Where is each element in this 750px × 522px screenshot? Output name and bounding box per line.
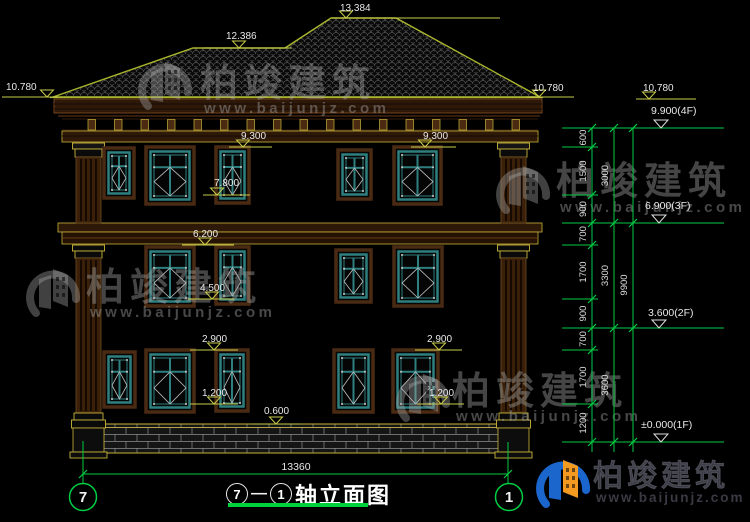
frame-dot — [185, 154, 187, 156]
frame-dot — [239, 357, 241, 359]
frame-dot — [429, 357, 431, 359]
frame-dot — [153, 166, 155, 168]
logo-window-dot — [426, 382, 429, 386]
dentil-block — [459, 120, 467, 131]
frame-dot — [362, 190, 364, 192]
dentil-block — [88, 120, 96, 131]
level-triangle — [654, 120, 668, 128]
chain-subtotal-value: 3300 — [600, 265, 611, 286]
frame-dot — [362, 257, 364, 259]
frame-dot — [364, 357, 366, 359]
frame-dot — [432, 195, 434, 197]
floor-level-marker: 9.900(4F) — [651, 105, 697, 128]
dentil-block — [353, 120, 361, 131]
logo-window-dot — [168, 78, 171, 82]
frame-dot — [401, 195, 403, 197]
window — [334, 350, 373, 412]
dentil-block — [512, 120, 520, 131]
frame-dot — [185, 166, 187, 168]
floor-level-marker: 6.900(3F) — [645, 200, 691, 223]
level-value: 1.200 — [429, 388, 454, 399]
frame-dot — [240, 166, 242, 168]
level-value: 10.780 — [643, 83, 674, 94]
dentil-block — [115, 120, 123, 131]
frame-dot — [239, 371, 241, 373]
level-marker: 2.900 — [415, 334, 462, 350]
pilaster-shaft — [76, 157, 101, 223]
logo-window-dot — [532, 190, 535, 194]
frame-dot — [343, 268, 345, 270]
pilaster-base — [72, 420, 106, 428]
level-marker: 10.780 — [636, 83, 696, 99]
frame-dot — [400, 357, 402, 359]
chain-segment-value: 700 — [578, 331, 589, 347]
frame-dot — [433, 254, 435, 256]
window — [394, 147, 441, 204]
watermark-logo-icon — [30, 269, 76, 313]
logo-building — [509, 172, 521, 206]
logo-building — [523, 166, 538, 204]
logo-window-dot — [532, 182, 535, 186]
frame-dot — [125, 155, 127, 157]
dentil-block — [194, 120, 202, 131]
dentil-block — [300, 120, 308, 131]
dentil-block — [327, 120, 335, 131]
logo-window-dot — [62, 285, 65, 289]
logo-window-dot — [572, 484, 575, 488]
logo-window-dot — [62, 293, 65, 297]
pilaster-pedestal — [73, 428, 104, 452]
watermark-brand: 柏竣建筑 — [200, 63, 376, 105]
logo-window-dot — [526, 182, 529, 186]
watermark-brand: 柏竣建筑 — [86, 267, 262, 309]
axis-bubble-label: 7 — [79, 489, 87, 506]
frame-dot — [185, 195, 187, 197]
axis-bubble-label: 1 — [505, 489, 513, 506]
title-underline — [228, 503, 368, 507]
logo-window-dot — [532, 174, 535, 178]
dentil-block — [406, 120, 414, 131]
level-value: 9.300 — [423, 131, 448, 142]
logo-window-dot — [56, 277, 59, 281]
frame-dot — [400, 371, 402, 373]
watermark-url: www.baijunjz.com — [455, 408, 641, 425]
dentil-block — [380, 120, 388, 131]
window — [104, 352, 135, 407]
level-triangle — [270, 417, 283, 424]
chain-segment-value: 900 — [578, 306, 589, 322]
floor-level-marker: ±0.000(1F) — [641, 419, 692, 442]
pilaster-capital — [75, 149, 102, 157]
frame-dot — [111, 189, 113, 191]
logo-window-dot — [526, 174, 529, 178]
frame-dot — [223, 254, 225, 256]
logo-building — [549, 466, 561, 500]
dentil-block — [221, 120, 229, 131]
frame-dot — [223, 357, 225, 359]
frame-dot — [343, 257, 345, 259]
axis-bubble: 7 — [70, 484, 97, 511]
pilaster-capital — [73, 245, 105, 251]
frame-dot — [126, 371, 128, 373]
chain-segment-value: 900 — [578, 201, 589, 217]
frame-dot — [111, 155, 113, 157]
logo-window-dot — [174, 78, 177, 82]
chain-segment-value: 1700 — [578, 261, 589, 282]
frame-dot — [401, 254, 403, 256]
logo-window-dot — [572, 476, 575, 480]
frame-dot — [433, 297, 435, 299]
logo-building — [53, 269, 68, 307]
window — [338, 150, 371, 199]
frame-dot — [362, 268, 364, 270]
floor-level-value: 6.900(3F) — [645, 200, 691, 212]
logo-building — [409, 380, 421, 414]
pilaster-capital — [498, 245, 530, 251]
level-marker: 0.600 — [252, 406, 300, 424]
frame-dot — [401, 267, 403, 269]
frame-dot — [433, 267, 435, 269]
frame-dot — [223, 166, 225, 168]
pilaster-capital — [75, 251, 102, 258]
watermark-url: www.baijunjz.com — [203, 100, 389, 117]
level-value: 7.800 — [214, 178, 239, 189]
axis-bubble: 1 — [496, 484, 523, 511]
frame-dot — [125, 189, 127, 191]
frame-dot — [341, 403, 343, 405]
level-value: 1.200 — [202, 388, 227, 399]
dentil-block — [274, 120, 282, 131]
level-value: 6.200 — [193, 229, 218, 240]
floor-level-marker: 3.600(2F) — [648, 307, 694, 328]
axis-bubble-end-label: 1 — [270, 483, 292, 505]
frame-dot — [341, 371, 343, 373]
level-marker: 13.384 — [332, 3, 500, 18]
frame-dot — [432, 166, 434, 168]
dentil-block — [433, 120, 441, 131]
frame-dot — [362, 167, 364, 169]
frame-dot — [345, 190, 347, 192]
brick-plinth — [101, 424, 501, 453]
frame-dot — [345, 157, 347, 159]
level-triangle — [654, 434, 668, 442]
logo-building — [165, 62, 180, 100]
pilaster-foot — [495, 452, 532, 458]
frame-dot — [111, 359, 113, 361]
axis-bubble-start-label: 7 — [226, 483, 248, 505]
chain-segment-value: 1700 — [578, 366, 589, 387]
level-value: 12.386 — [226, 31, 257, 42]
frame-dot — [111, 398, 113, 400]
window — [146, 350, 194, 412]
window — [104, 148, 134, 198]
axis-dash: — — [251, 489, 267, 499]
level-value: 10.780 — [533, 83, 564, 94]
window — [146, 147, 194, 204]
chain-segment-value: 1500 — [578, 160, 589, 181]
chain-segment-value: 1200 — [578, 412, 589, 433]
window — [394, 247, 442, 306]
logo-building — [563, 460, 578, 498]
frame-dot — [345, 167, 347, 169]
chain-segment-value: 700 — [578, 226, 589, 242]
frame-dot — [364, 371, 366, 373]
frame-dot — [240, 254, 242, 256]
pilaster-capital — [73, 143, 105, 149]
logo-window-dot — [566, 484, 569, 488]
logo-window-dot — [432, 382, 435, 386]
logo-window-dot — [56, 285, 59, 289]
frame-dot — [341, 357, 343, 359]
pilaster-pedestal — [498, 428, 529, 452]
watermark-url: www.baijunjz.com — [89, 304, 275, 321]
logo-window-dot — [168, 70, 171, 74]
frame-dot — [429, 371, 431, 373]
frame-dot — [126, 359, 128, 361]
dentil-block — [168, 120, 176, 131]
frame-dot — [153, 357, 155, 359]
dentil-block — [141, 120, 149, 131]
floor-level-value: 9.900(4F) — [651, 105, 697, 117]
pilaster-capital — [498, 143, 530, 149]
chain-segment-value: 600 — [578, 130, 589, 146]
footer-brand: 柏竣建筑 — [593, 459, 729, 493]
frame-dot — [153, 154, 155, 156]
window — [336, 250, 371, 302]
frame-dot — [223, 371, 225, 373]
level-triangle — [233, 41, 246, 48]
belt-band — [58, 223, 542, 232]
window — [216, 350, 248, 411]
dentil-block — [486, 120, 494, 131]
frame-dot — [401, 297, 403, 299]
elevation-drawing: 柏竣建筑www.baijunjz.com柏竣建筑www.baijunjz.com… — [0, 0, 750, 522]
logo-window-dot — [56, 293, 59, 297]
pilaster-base — [74, 413, 103, 420]
pilaster-capital — [500, 149, 527, 157]
logo-window-dot — [174, 70, 177, 74]
frame-dot — [125, 165, 127, 167]
logo-window-dot — [566, 476, 569, 480]
logo-building — [39, 275, 51, 309]
logo-window-dot — [62, 277, 65, 281]
dentil-block — [247, 120, 255, 131]
frame-dot — [401, 166, 403, 168]
drawing-title: 7 — 1 轴立面图 — [226, 478, 391, 510]
level-value: 2.900 — [202, 334, 227, 345]
frame-dot — [185, 254, 187, 256]
frame-dot — [153, 371, 155, 373]
level-value: 4.500 — [200, 283, 225, 294]
frame-dot — [223, 154, 225, 156]
level-triangle — [652, 215, 666, 223]
level-value: 0.600 — [264, 406, 289, 417]
floor-level-value: ±0.000(1F) — [641, 419, 692, 431]
frame-dot — [401, 154, 403, 156]
footer-url: www.baijunjz.com — [595, 490, 745, 505]
frame-dot — [362, 293, 364, 295]
frame-dot — [153, 254, 155, 256]
frame-dot — [364, 403, 366, 405]
level-marker: 12.386 — [204, 31, 292, 48]
frame-dot — [432, 154, 434, 156]
frame-dot — [185, 403, 187, 405]
floor-level-value: 3.600(2F) — [648, 307, 694, 319]
level-value: 9.300 — [241, 131, 266, 142]
frame-dot — [240, 154, 242, 156]
level-triangle — [41, 90, 54, 97]
level-value: 13.384 — [340, 3, 371, 14]
level-marker: 2.900 — [190, 334, 238, 350]
frame-dot — [111, 165, 113, 167]
frame-dot — [111, 371, 113, 373]
watermark-logo-icon — [540, 460, 586, 504]
pilaster-capital — [500, 251, 527, 258]
overall-dim-value: 13360 — [281, 461, 310, 473]
frame-dot — [343, 293, 345, 295]
logo-window-dot — [168, 86, 171, 90]
pilaster-foot — [70, 452, 107, 458]
frame-dot — [239, 402, 241, 404]
level-triangle — [652, 320, 666, 328]
frame-dot — [153, 403, 155, 405]
chain-total-value: 9900 — [619, 274, 630, 295]
chain-subtotal-value: 3000 — [600, 165, 611, 186]
logo-window-dot — [572, 468, 575, 472]
logo-window-dot — [174, 86, 177, 90]
level-value: 10.780 — [6, 82, 37, 93]
logo-window-dot — [566, 468, 569, 472]
chain-subtotal-value: 3600 — [600, 374, 611, 395]
cad-canvas: 柏竣建筑www.baijunjz.com柏竣建筑www.baijunjz.com… — [0, 0, 750, 522]
level-value: 2.900 — [427, 334, 452, 345]
frame-dot — [126, 398, 128, 400]
frame-dot — [362, 157, 364, 159]
frame-dot — [185, 357, 187, 359]
frame-dot — [185, 371, 187, 373]
frame-dot — [153, 195, 155, 197]
logo-building — [151, 68, 163, 102]
logo-window-dot — [526, 190, 529, 194]
level-marker: 10.780 — [2, 82, 58, 97]
